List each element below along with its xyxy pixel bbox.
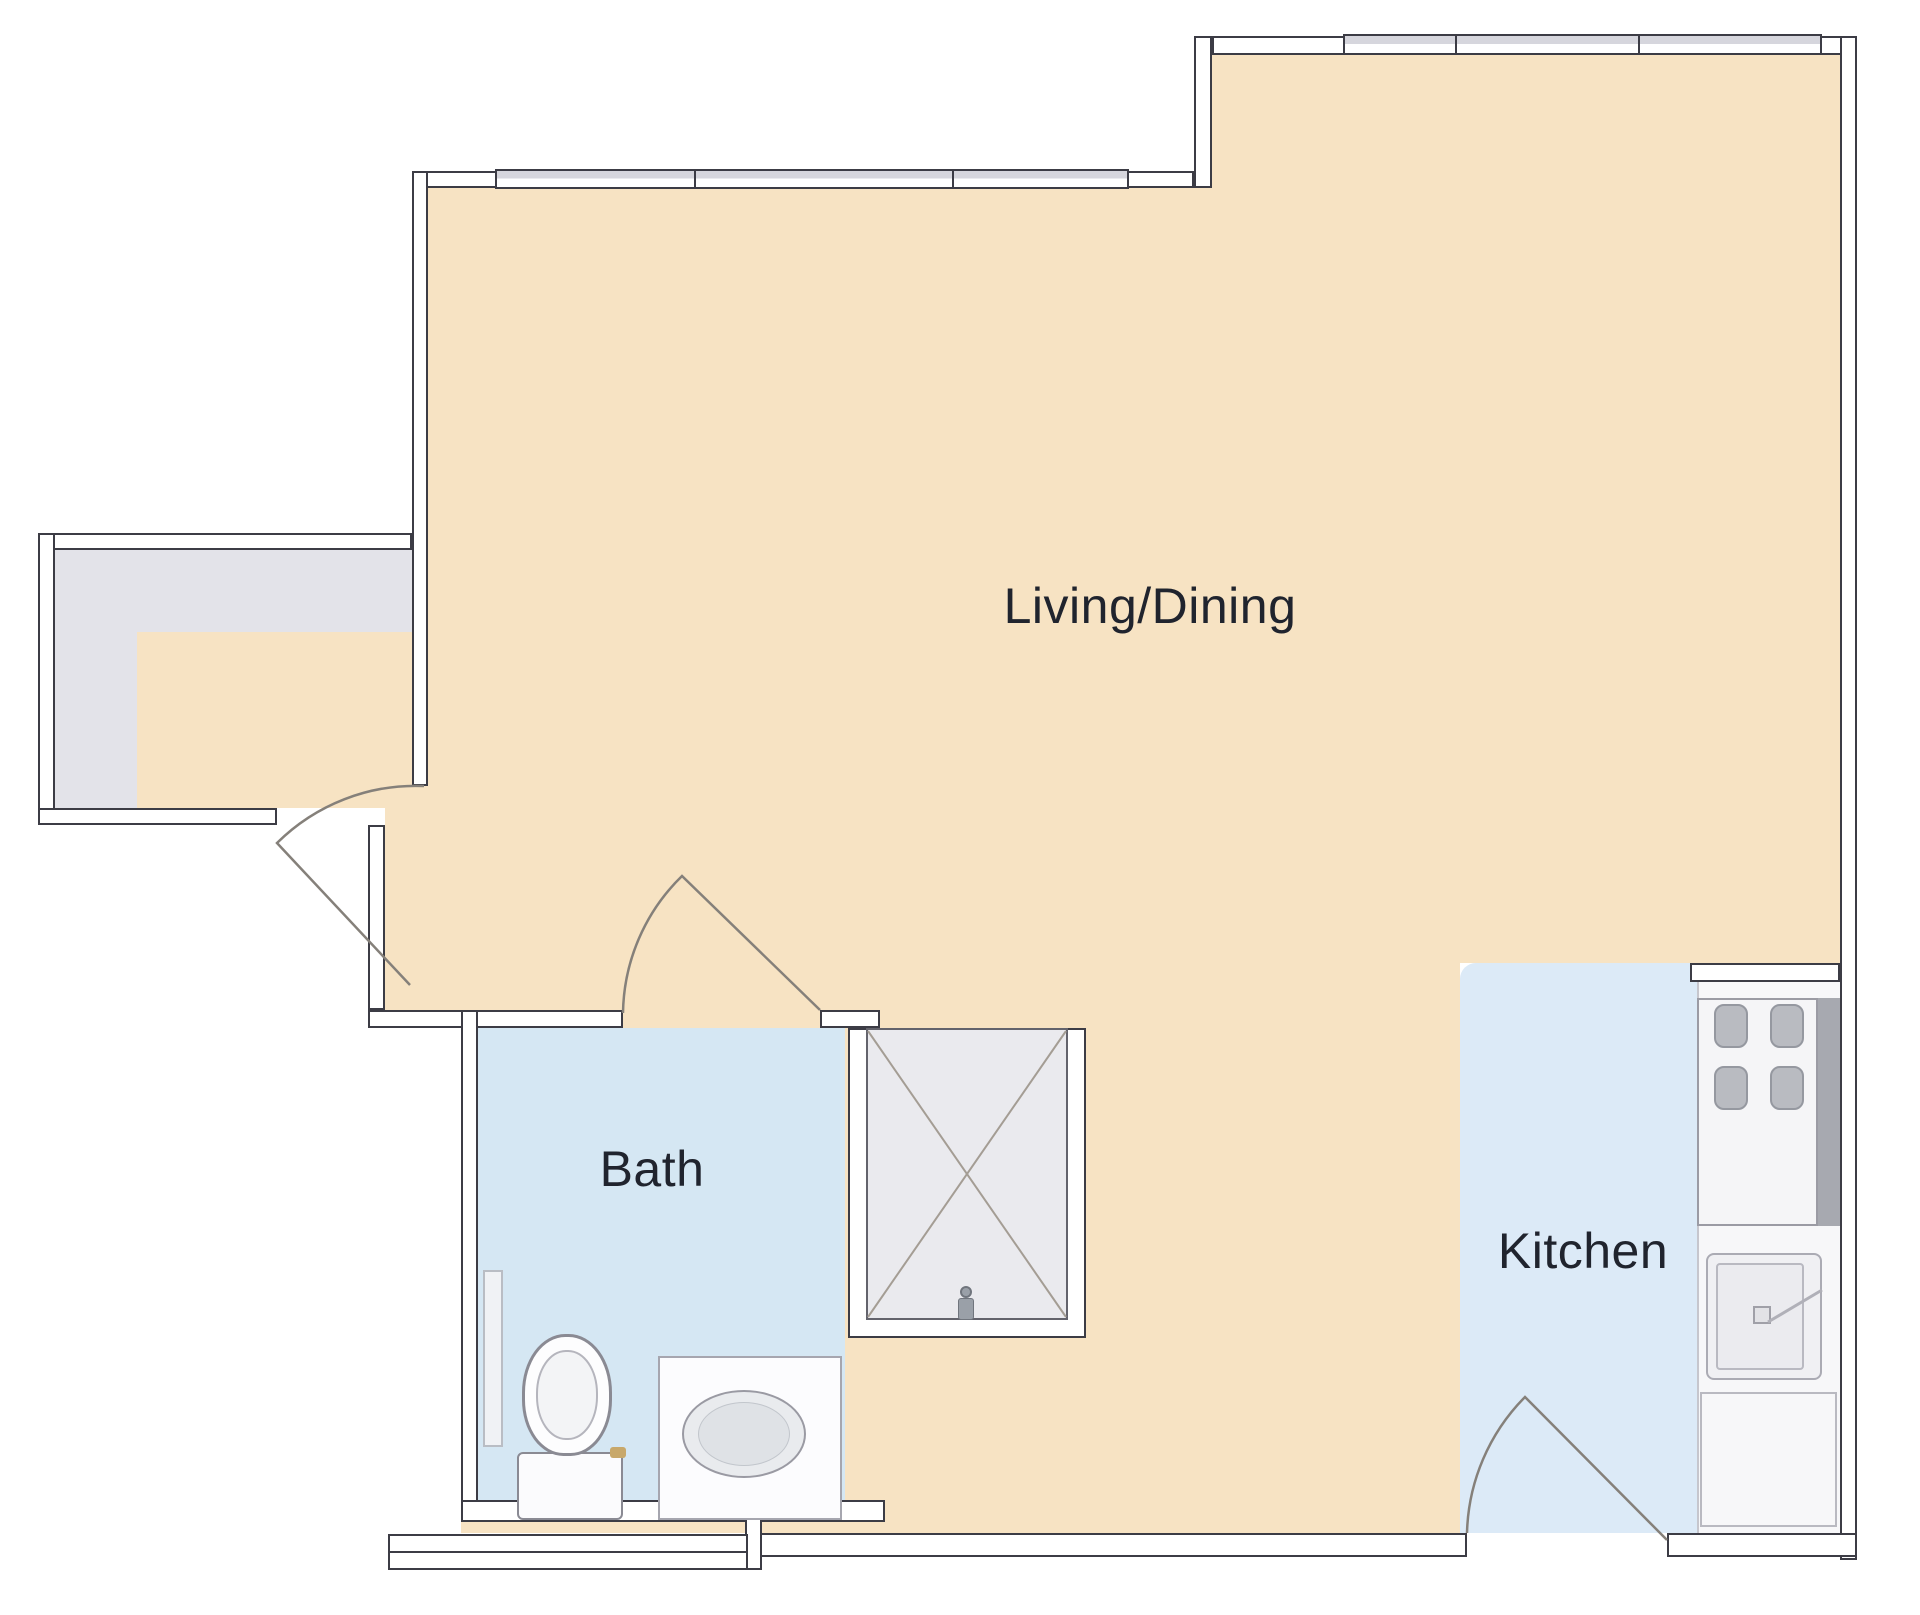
stove-burner bbox=[1770, 1066, 1804, 1110]
window-mullion bbox=[1455, 36, 1457, 53]
wall-entry-top bbox=[38, 533, 412, 550]
wall-step bbox=[1194, 36, 1212, 188]
entry-closet-band-left bbox=[55, 550, 137, 808]
window-band-top-right bbox=[1343, 34, 1822, 55]
shower-pan bbox=[866, 1028, 1068, 1320]
bath-wall-cabinet bbox=[483, 1270, 503, 1447]
kitchen-label: Kitchen bbox=[1433, 1222, 1733, 1280]
living-dining-label: Living/Dining bbox=[900, 577, 1400, 635]
stove-side-strip bbox=[1818, 998, 1840, 1226]
toilet-flush-handle bbox=[610, 1447, 626, 1458]
shower-drain-icon bbox=[958, 1298, 974, 1320]
wall-bath-top-left bbox=[368, 1010, 623, 1028]
wall-entry-left bbox=[38, 533, 55, 825]
window-band-bottom-left bbox=[388, 1534, 748, 1570]
sink-basin-inner bbox=[698, 1402, 790, 1466]
wall-bath-top-right bbox=[820, 1010, 880, 1028]
living-dining-floor-upper-right bbox=[1212, 55, 1840, 963]
wall-bottom-right bbox=[1667, 1533, 1857, 1557]
toilet-tank-icon bbox=[517, 1452, 623, 1520]
window-band-top-left bbox=[495, 169, 1129, 189]
wall-living-left bbox=[412, 171, 428, 786]
stove-burner bbox=[1714, 1004, 1748, 1048]
wall-bath-left bbox=[461, 1010, 478, 1522]
wall-right bbox=[1840, 36, 1857, 1560]
wall-hallway-left bbox=[368, 825, 385, 1010]
window-mullion bbox=[1638, 36, 1640, 53]
wall-kitchen-top bbox=[1690, 963, 1840, 982]
stove-burner bbox=[1770, 1004, 1804, 1048]
wall-entry-bottom bbox=[38, 808, 277, 825]
floor-plan-canvas: Living/Dining Bath Kitchen bbox=[0, 0, 1920, 1615]
kitchen-sink-drain bbox=[1753, 1306, 1771, 1324]
living-dining-floor-upper-left bbox=[428, 188, 1212, 963]
bath-label: Bath bbox=[502, 1140, 802, 1198]
window-mullion bbox=[952, 171, 954, 187]
toilet-bowl-inner bbox=[536, 1350, 598, 1440]
wall-bottom-center bbox=[760, 1533, 1467, 1557]
refrigerator-icon bbox=[1700, 1392, 1837, 1527]
hallway-floor bbox=[385, 786, 461, 1010]
window-midline bbox=[390, 1551, 746, 1553]
window-mullion bbox=[694, 171, 696, 187]
stove-burner bbox=[1714, 1066, 1748, 1110]
